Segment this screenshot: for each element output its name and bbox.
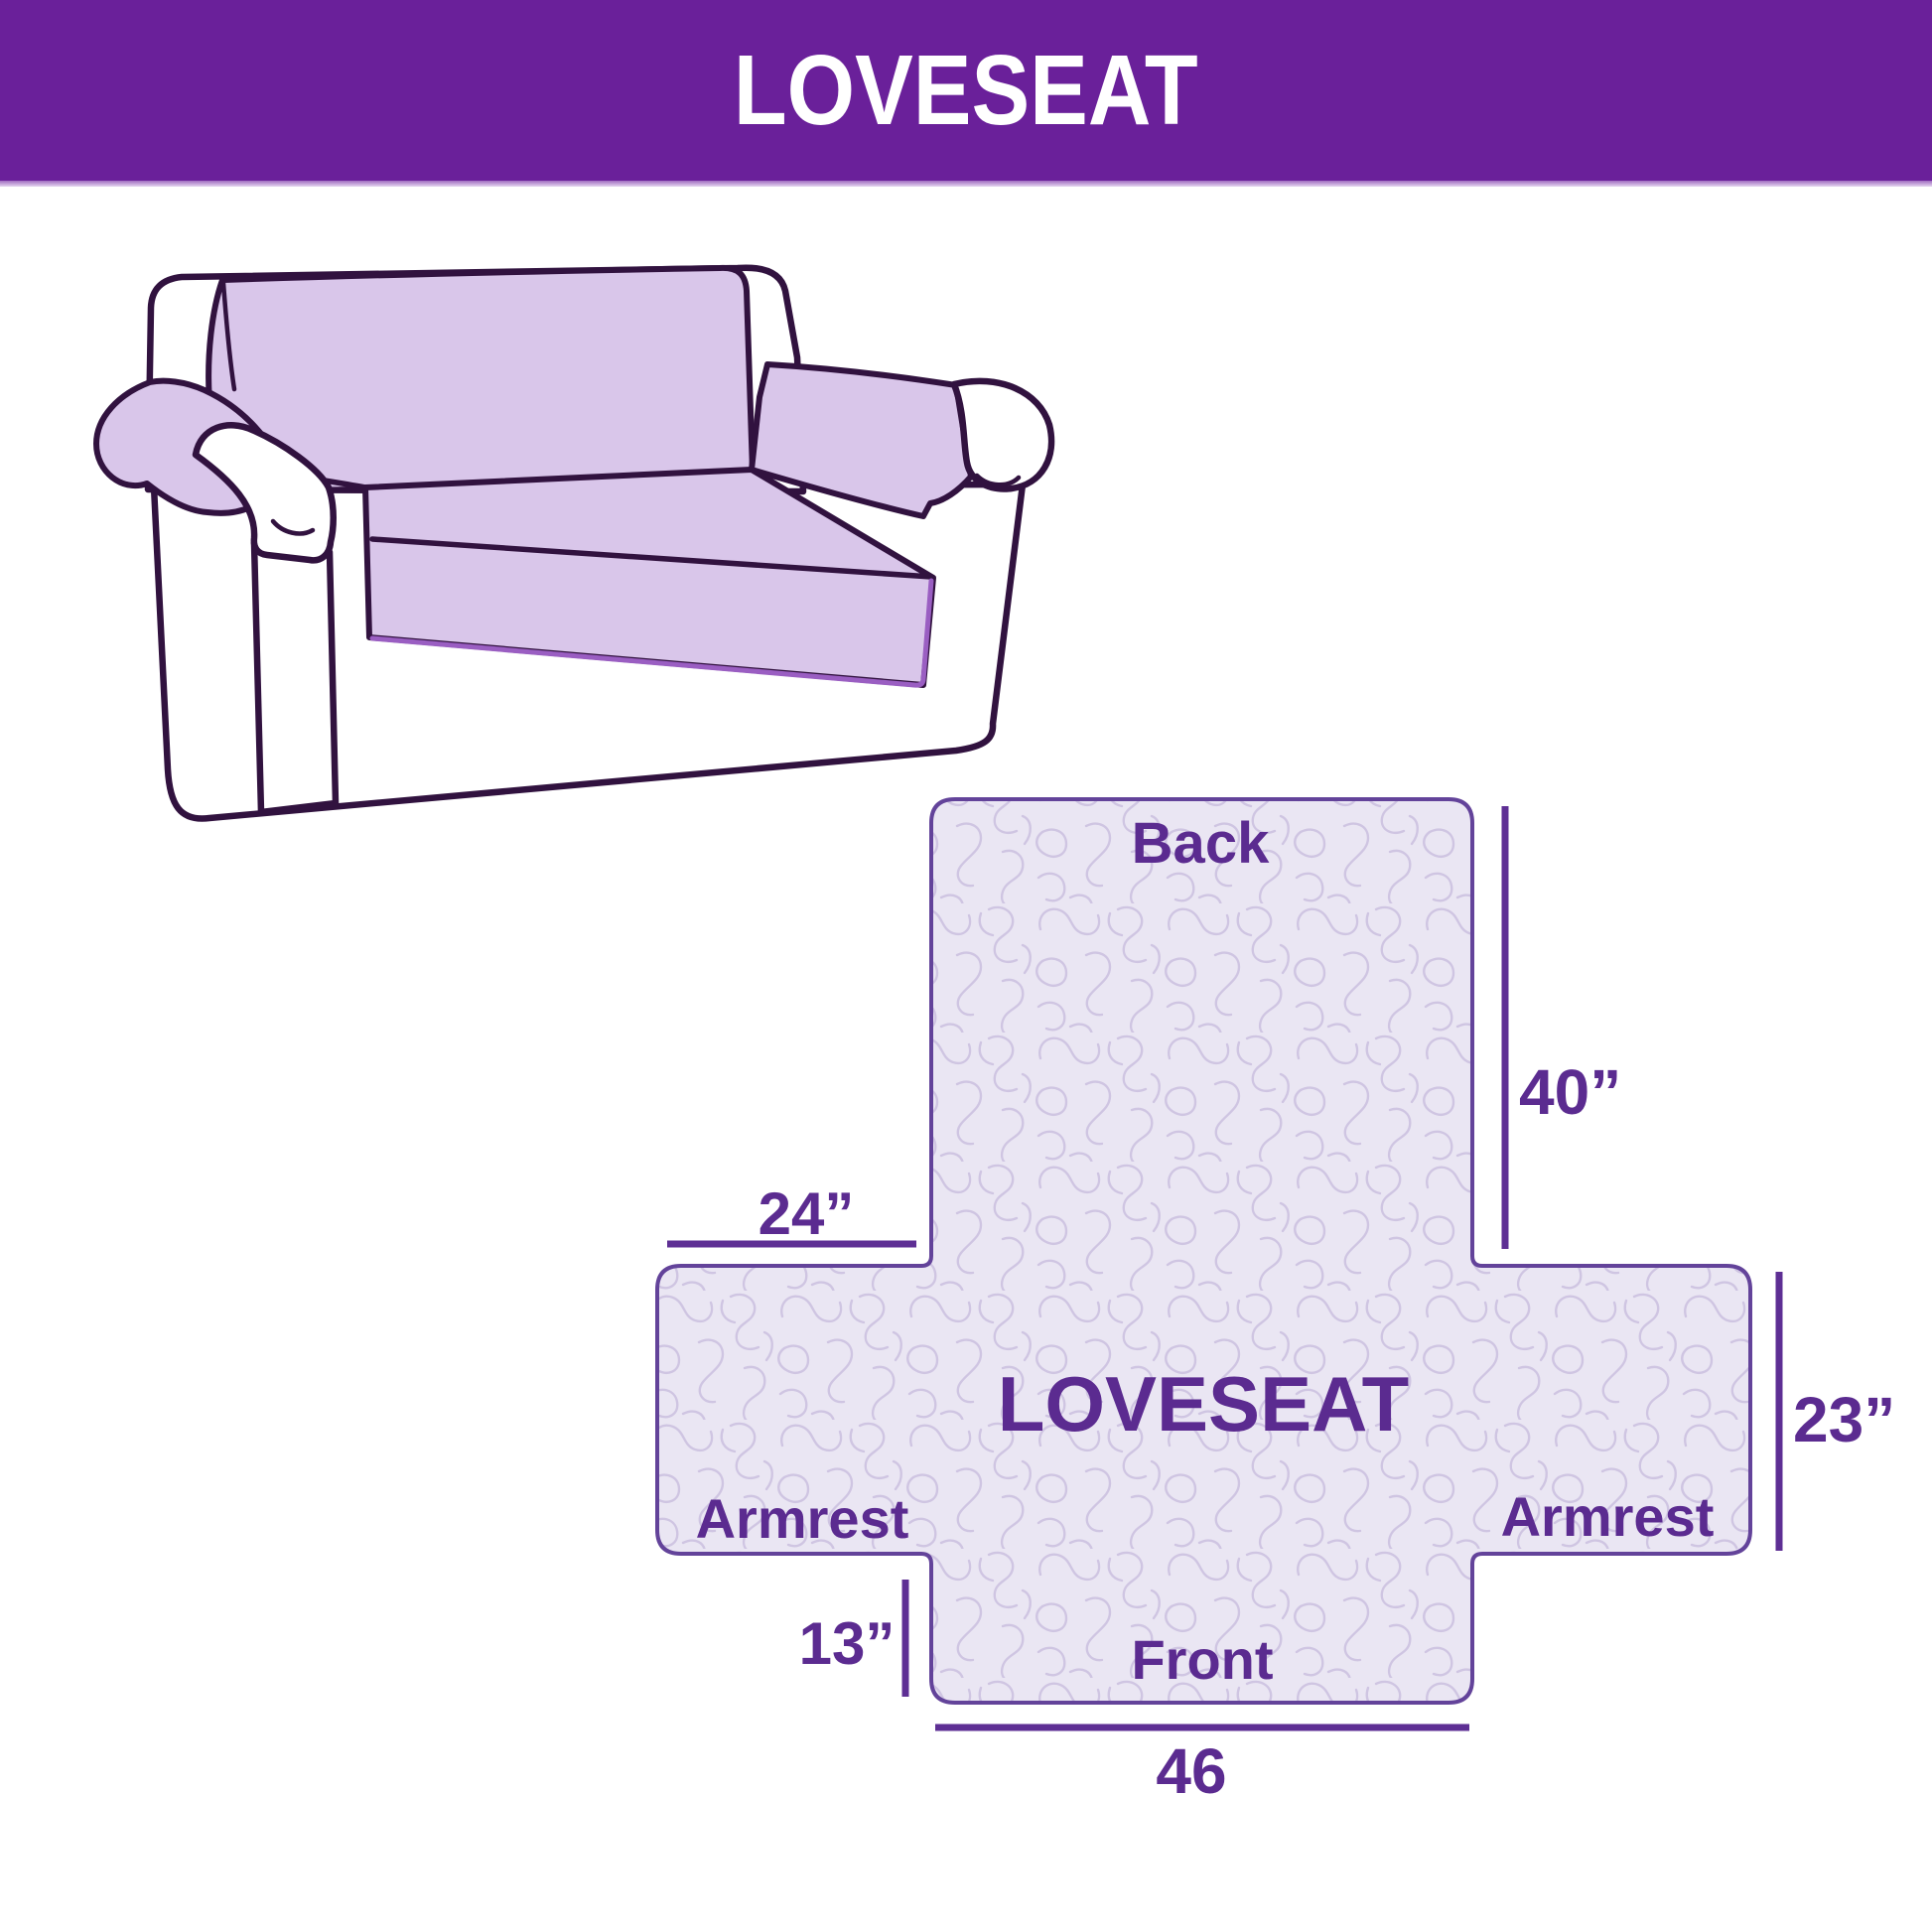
diagram-center-label: LOVESEAT — [998, 1360, 1410, 1448]
front-width-dimension-label: 46 — [1156, 1735, 1226, 1807]
cover-dimension-diagram: Back 40” 24” LOVESEAT Armrest Armrest 23… — [596, 774, 1932, 1886]
back-height-dimension-label: 40” — [1519, 1056, 1621, 1128]
back-section-label: Back — [1132, 811, 1270, 876]
title-banner: LOVESEAT — [0, 0, 1932, 181]
armrest-right-label: Armrest — [1501, 1485, 1715, 1548]
front-drop-dimension-label: 13” — [799, 1610, 896, 1677]
page: LOVESEAT — [0, 0, 1932, 1932]
left-arm-front-face — [254, 543, 336, 812]
armrest-left-label: Armrest — [696, 1487, 909, 1550]
cover-shape-quilt-texture — [657, 799, 1750, 1703]
armrest-height-dimension-label: 23” — [1793, 1384, 1895, 1455]
front-section-label: Front — [1131, 1628, 1273, 1691]
right-arm-scroll — [954, 381, 1051, 489]
loveseat-cover-illustration — [84, 223, 1067, 864]
cover-shape — [657, 799, 1750, 1703]
armrest-width-dimension-label: 24” — [759, 1180, 855, 1247]
page-title: LOVESEAT — [734, 34, 1198, 148]
